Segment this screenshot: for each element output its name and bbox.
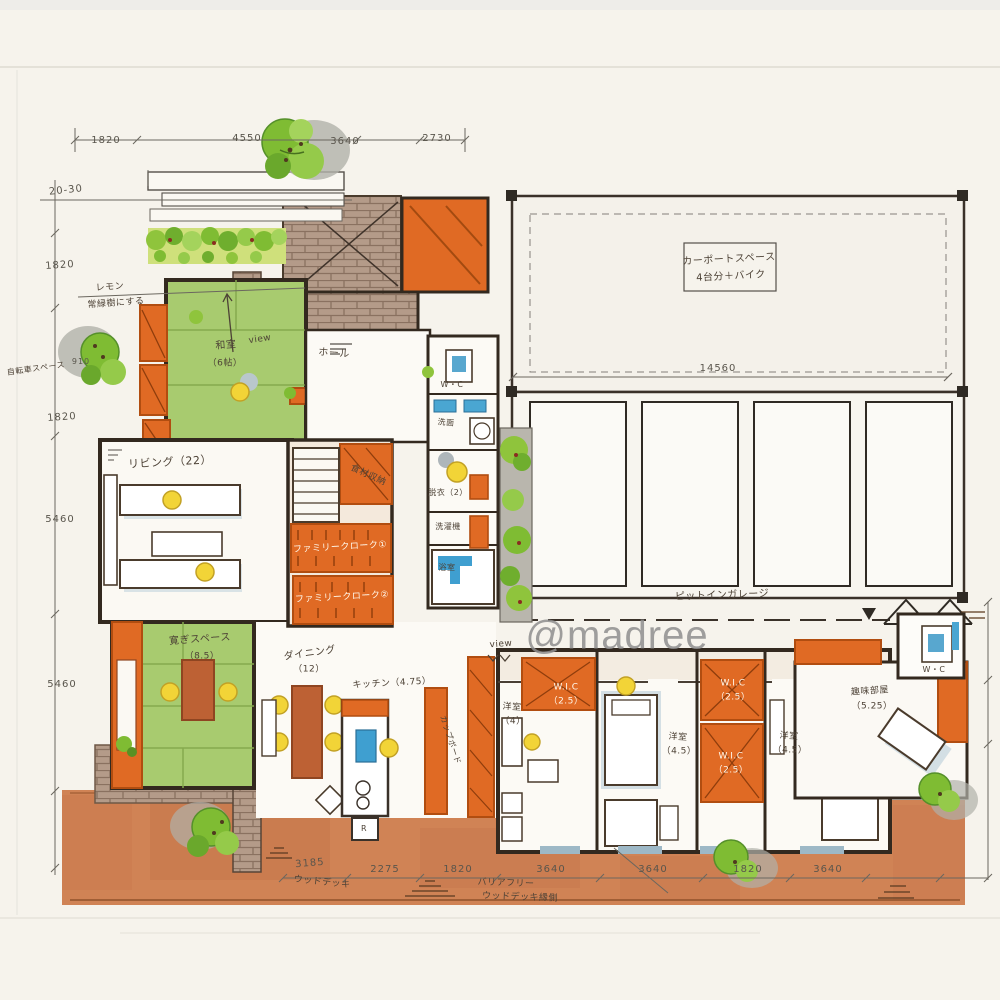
cupboard-counter (425, 688, 447, 814)
person-living-2 (196, 563, 214, 581)
wic2-size: （2.5） (716, 694, 751, 703)
watermark: @madree (525, 614, 708, 659)
coffee-table (152, 532, 222, 556)
carport-area (509, 196, 964, 392)
datsui-label: 脱衣（2） (428, 489, 468, 497)
person-kutsurogi-1 (161, 683, 179, 701)
wic3-size: （2.5） (714, 767, 749, 776)
dim-top-3: 3640 (330, 137, 359, 147)
kutsurogi-room (112, 622, 254, 788)
wic1-size: （2.5） (549, 698, 584, 707)
tree-front (262, 119, 350, 180)
person-kitchen (380, 739, 398, 757)
person-washitsu (231, 383, 249, 401)
dim-top-1: 1820 (91, 136, 120, 146)
dim-bottom-5: 3640 (638, 865, 667, 875)
bedroom2-size: （4.5） (662, 748, 697, 757)
dining-bench (262, 700, 276, 756)
sink-1 (434, 400, 456, 412)
dining-chair-3 (325, 696, 343, 714)
bedroom1-label: 洋室 (502, 703, 522, 713)
floor-plan-sketch-photo: 1820 4550 3640 2730 20-30 1820 910 1820 … (0, 0, 1000, 1000)
senmen-label: 洗面 (437, 418, 455, 427)
hedge (146, 227, 287, 264)
wc1-label: W・C (441, 381, 464, 389)
burner-1 (356, 781, 370, 795)
wic3-label: W.I.C (718, 753, 743, 762)
dim-bottom-6: 1820 (733, 865, 762, 875)
burner-2 (357, 797, 369, 809)
low-table (182, 660, 214, 720)
bedroom3-label: 洋室 (779, 732, 799, 742)
dining-chair-4 (325, 733, 343, 751)
hobby-size: （5.25） (851, 703, 892, 712)
laundry-label: 洗濯機 (435, 523, 461, 531)
bedroom3-size: （4.5） (773, 747, 808, 756)
person-kutsurogi-2 (219, 683, 237, 701)
kitchen-sink (356, 730, 376, 762)
fridge-label: R (361, 825, 367, 833)
tv-board (104, 475, 117, 585)
bed2-bedroom2 (605, 800, 657, 846)
dim-left-3: 1820 (47, 412, 77, 424)
hall-label: ホール (318, 348, 350, 360)
shrub-west (189, 310, 203, 324)
dim-top-2: 4550 (232, 134, 261, 144)
wc2-label: W・C (923, 666, 946, 674)
wic1-label: W.I.C (553, 684, 578, 693)
person-washroom (447, 462, 467, 482)
person-living-1 (163, 491, 181, 509)
dim-left-1: 1820 (45, 260, 75, 272)
sofa-2 (120, 560, 240, 588)
bedroom1-size: （4） (500, 718, 525, 727)
dim-top-4: 2730 (422, 134, 451, 144)
person-bedroom1 (524, 734, 540, 750)
courtyard-garden (500, 428, 532, 622)
tree-west (58, 326, 126, 385)
bed2-bedroom3 (822, 798, 878, 840)
kutsurogi-size: （8.5） (185, 653, 220, 662)
dim-left-4: 5460 (45, 515, 74, 525)
bath-label: 浴室 (439, 564, 456, 572)
garage-entry-arrow (862, 608, 876, 620)
person-bedroom2 (617, 677, 635, 695)
floor-plan-drawing (0, 0, 1000, 1000)
dim-bottom-3: 1820 (443, 865, 472, 875)
bedroom2-label: 洋室 (668, 733, 688, 743)
pot-plant (284, 387, 296, 399)
view-note-bottom: view (489, 640, 512, 651)
shrub-hall (422, 366, 434, 378)
dim-bottom-4: 3640 (536, 865, 565, 875)
dining-table (292, 686, 322, 778)
dim-bottom-7: 3640 (813, 865, 842, 875)
dim-left-2: 910 (72, 358, 90, 366)
wic2-label: W.I.C (720, 680, 745, 689)
garage-width-dim: 14560 (700, 364, 737, 374)
washitsu-size: （6帖） (208, 360, 243, 369)
carport-label-box (684, 243, 776, 291)
tall-cupboard (468, 657, 494, 817)
sink-2 (464, 400, 486, 412)
washitsu-label: 和室 (215, 340, 237, 351)
dim-left-5: 5460 (47, 680, 76, 690)
dining-size: （12） (293, 666, 324, 675)
dim-bottom-2: 2275 (370, 865, 399, 875)
